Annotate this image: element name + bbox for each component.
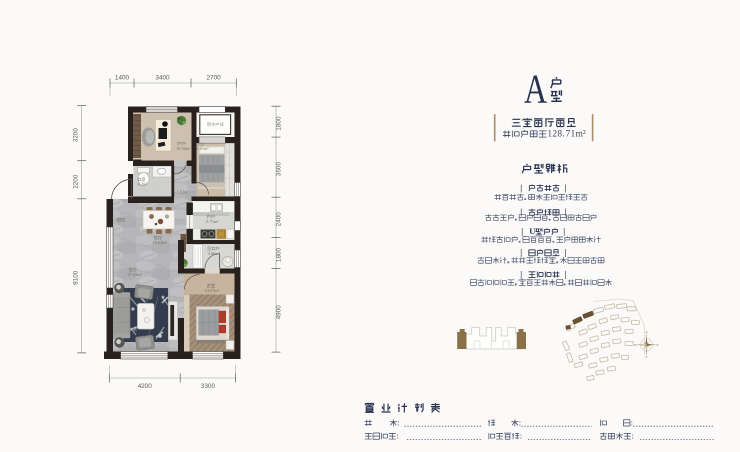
svg-text:|: | [564,247,566,257]
svg-text:m²: m² [204,146,210,151]
svg-text:3400: 3400 [155,75,170,82]
svg-text:4900: 4900 [275,305,282,320]
svg-text:|: | [520,269,522,279]
svg-text:m²: m² [162,240,168,245]
svg-text:3300: 3300 [201,383,216,390]
svg-text:S: S [646,355,648,359]
svg-text:2200: 2200 [73,174,80,189]
svg-text:|: | [520,247,522,257]
svg-text:m²: m² [184,190,189,195]
svg-text:.: . [562,130,564,140]
svg-text::: : [631,417,633,427]
svg-text:4200: 4200 [138,383,153,390]
svg-text:m²: m² [137,272,143,277]
svg-text:m²: m² [576,130,586,140]
svg-text:3600: 3600 [275,162,282,177]
svg-text:A: A [524,66,547,112]
svg-text:3200: 3200 [73,128,80,143]
svg-text:1800: 1800 [275,247,282,262]
svg-text:|: | [520,182,522,192]
svg-text:|: | [521,226,523,236]
svg-text:|: | [563,226,565,236]
svg-text:1800: 1800 [275,116,282,131]
svg-text::: : [519,417,521,427]
svg-text::: : [632,431,634,441]
svg-text:E: E [656,343,658,347]
svg-text:|: | [520,207,522,217]
svg-text:m²: m² [215,251,221,256]
svg-text:9100: 9100 [73,270,80,285]
svg-text:1400: 1400 [115,75,130,82]
svg-text:|: | [564,269,566,279]
svg-text:U: U [529,226,535,236]
svg-text::: : [520,431,522,441]
svg-text:m²: m² [214,288,220,293]
svg-text:m²: m² [214,219,220,224]
svg-text:|: | [564,207,566,217]
svg-text:2700: 2700 [206,75,221,82]
svg-text:m²: m² [186,146,192,151]
svg-text::: : [397,417,399,427]
svg-text:m²: m² [143,182,148,187]
svg-text::: : [396,431,398,441]
svg-text:|: | [564,182,566,192]
svg-text:2400: 2400 [275,212,282,227]
